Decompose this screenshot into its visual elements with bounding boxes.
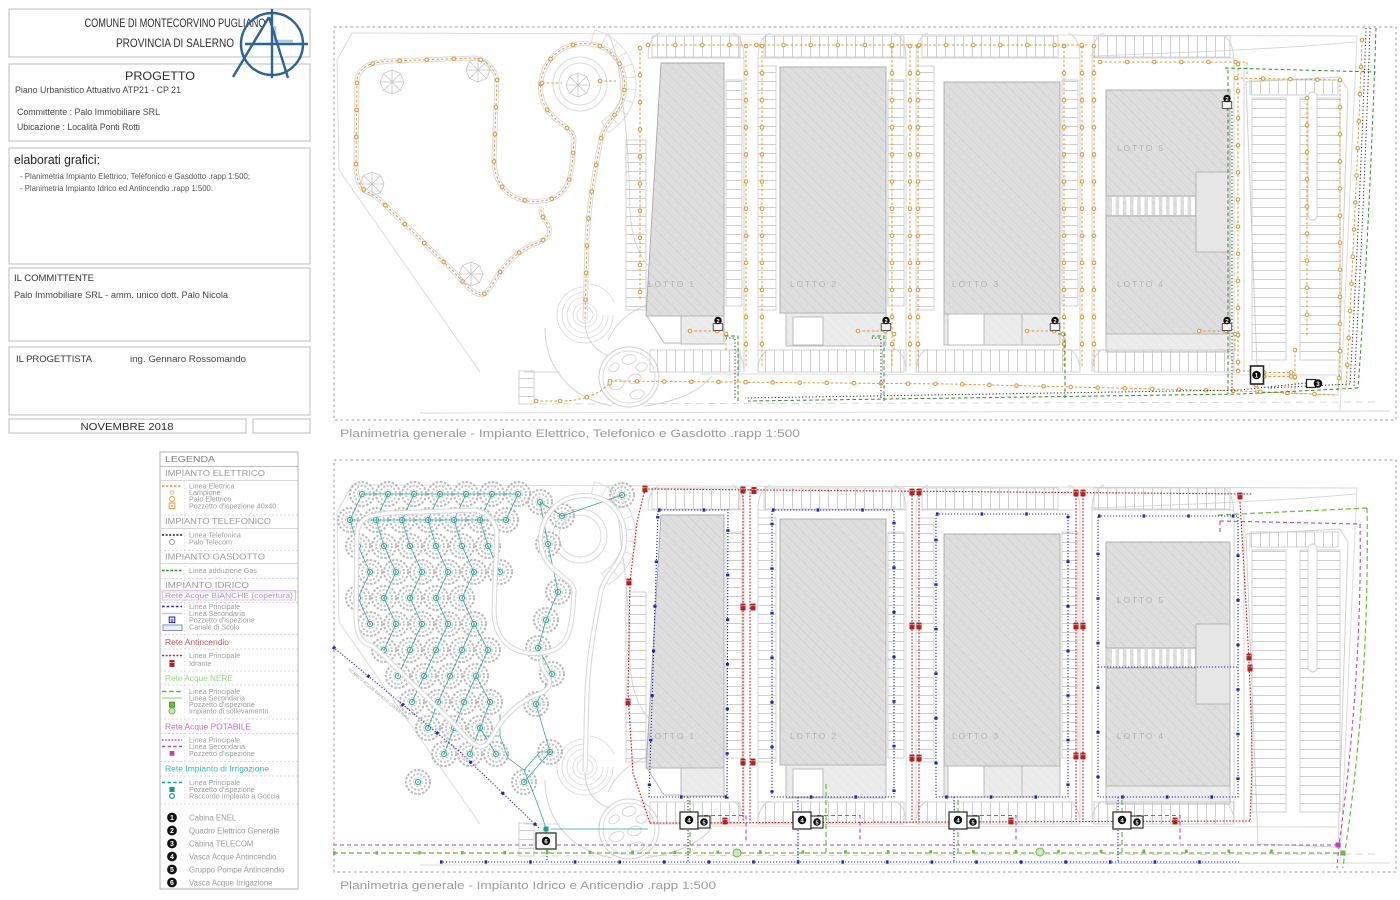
svg-text:Pozzetto d'ispezione 40x40: Pozzetto d'ispezione 40x40 [189,502,276,511]
svg-text:PROVINCIA DI SALERNO: PROVINCIA DI SALERNO [116,36,234,50]
svg-text:IMPIANTO ELETTRICO: IMPIANTO ELETTRICO [165,469,265,478]
svg-text:Pozzetto d'ispezione: Pozzetto d'ispezione [189,749,255,758]
svg-text:Raccordo Impianto a Goccia: Raccordo Impianto a Goccia [189,792,280,801]
svg-text:Cabina TELECOM: Cabina TELECOM [189,839,253,848]
svg-text:Piano Urbanistico Attuativo AT: Piano Urbanistico Attuativo ATP21 - CP 2… [15,85,181,95]
svg-text:5: 5 [1135,820,1138,826]
svg-text:IMPIANTO IDRICO: IMPIANTO IDRICO [165,581,249,590]
svg-text:Linea adduzione Gas: Linea adduzione Gas [189,566,257,575]
svg-text:Cabina ENEL: Cabina ENEL [189,813,237,822]
svg-text:5: 5 [815,820,818,826]
svg-text:3: 3 [1316,381,1320,388]
svg-text:Idrante: Idrante [189,659,211,668]
svg-text:Rete Antincendio: Rete Antincendio [165,638,230,647]
svg-text:IL PROGETTISTA: IL PROGETTISTA [16,354,93,365]
svg-text:2: 2 [884,319,887,325]
svg-text:Palo Immobiliare SRL - amm. un: Palo Immobiliare SRL - amm. unico dott. … [14,290,228,300]
svg-text:PROGETTO: PROGETTO [125,71,195,83]
svg-text:Canale di Scolo: Canale di Scolo [189,623,239,632]
svg-text:Rete Impianto di Irrigazione: Rete Impianto di Irrigazione [165,765,269,774]
svg-text:1: 1 [170,815,174,822]
svg-text:Vasca Acque Irrigazione: Vasca Acque Irrigazione [189,878,273,887]
svg-text:B: B [171,618,174,623]
svg-text:elaborati grafici:: elaborati grafici: [14,152,100,167]
svg-text:Planimetria generale - Impiant: Planimetria generale - Impianto Idrico e… [340,880,716,892]
svg-text:1: 1 [1255,373,1259,380]
svg-text:Vasca Acque Antincendio: Vasca Acque Antincendio [189,852,277,861]
svg-text:LOTTO 1: LOTTO 1 [648,279,696,289]
svg-text:Rete Acque NERE: Rete Acque NERE [165,674,233,683]
svg-text:ing. Gennaro Rossomando: ing. Gennaro Rossomando [130,354,246,364]
svg-text:LOTTO 5: LOTTO 5 [1117,595,1165,605]
svg-text:5: 5 [971,820,974,826]
svg-text:2: 2 [1225,319,1228,325]
svg-text:Rete Acque POTABILE: Rete Acque POTABILE [165,723,251,732]
svg-text:2: 2 [716,319,719,325]
svg-text:2: 2 [1053,319,1056,325]
svg-text:5: 5 [702,820,705,826]
svg-text:LOTTO 4: LOTTO 4 [1117,279,1165,289]
svg-text:- Planimetria Impianto Elettri: - Planimetria Impianto Elettrico, Telefo… [20,171,250,181]
svg-text:NOVEMBRE 2018: NOVEMBRE 2018 [81,421,174,433]
svg-text:LOTTO 2: LOTTO 2 [790,731,838,741]
svg-text:LOTTO 3: LOTTO 3 [952,731,1000,741]
svg-text:3: 3 [170,841,174,848]
svg-text:LOTTO 1: LOTTO 1 [648,731,696,741]
svg-text:COMUNE DI MONTECORVINO PUGLIAN: COMUNE DI MONTECORVINO PUGLIANO [85,16,266,30]
svg-text:4: 4 [170,854,174,861]
svg-text:6: 6 [170,880,174,887]
svg-text:Quadro Elettrico Generale: Quadro Elettrico Generale [189,826,280,835]
svg-text:LOTTO 5: LOTTO 5 [1117,143,1165,153]
svg-text:Committente : Palo Immobilia: Committente : Palo Immobiliare SRL [17,107,160,117]
svg-text:Palo Telecom: Palo Telecom [189,538,232,547]
svg-text:LOTTO 4: LOTTO 4 [1117,731,1165,741]
svg-text:IMPIANTO GASDOTTO: IMPIANTO GASDOTTO [165,553,265,562]
svg-text:Impianto di sollevamento: Impianto di sollevamento [189,707,269,716]
svg-text:2: 2 [170,828,174,835]
svg-text:Rete Acque BIANCHE (copertura): Rete Acque BIANCHE (copertura) [165,591,293,600]
svg-text:IMPIANTO TELEFONICO: IMPIANTO TELEFONICO [165,517,271,526]
svg-text:LEGENDA: LEGENDA [165,454,216,464]
svg-text:5: 5 [170,867,174,874]
svg-text:2: 2 [1225,97,1228,103]
svg-text:LOTTO 2: LOTTO 2 [790,279,838,289]
svg-text:Gruppo Pompe Antincendio: Gruppo Pompe Antincendio [189,865,285,874]
svg-text:Ubicazione : Località Ponti Ro: Ubicazione : Località Ponti Rotti [17,122,140,132]
svg-text:IL COMMITTENTE: IL COMMITTENTE [14,273,94,284]
svg-text:Planimetria generale - Impiant: Planimetria generale - Impianto Elettric… [340,428,800,440]
svg-text:- Planimetria Impianto Idrico: - Planimetria Impianto Idrico ed Antince… [20,183,213,193]
svg-text:LOTTO 3: LOTTO 3 [952,279,1000,289]
